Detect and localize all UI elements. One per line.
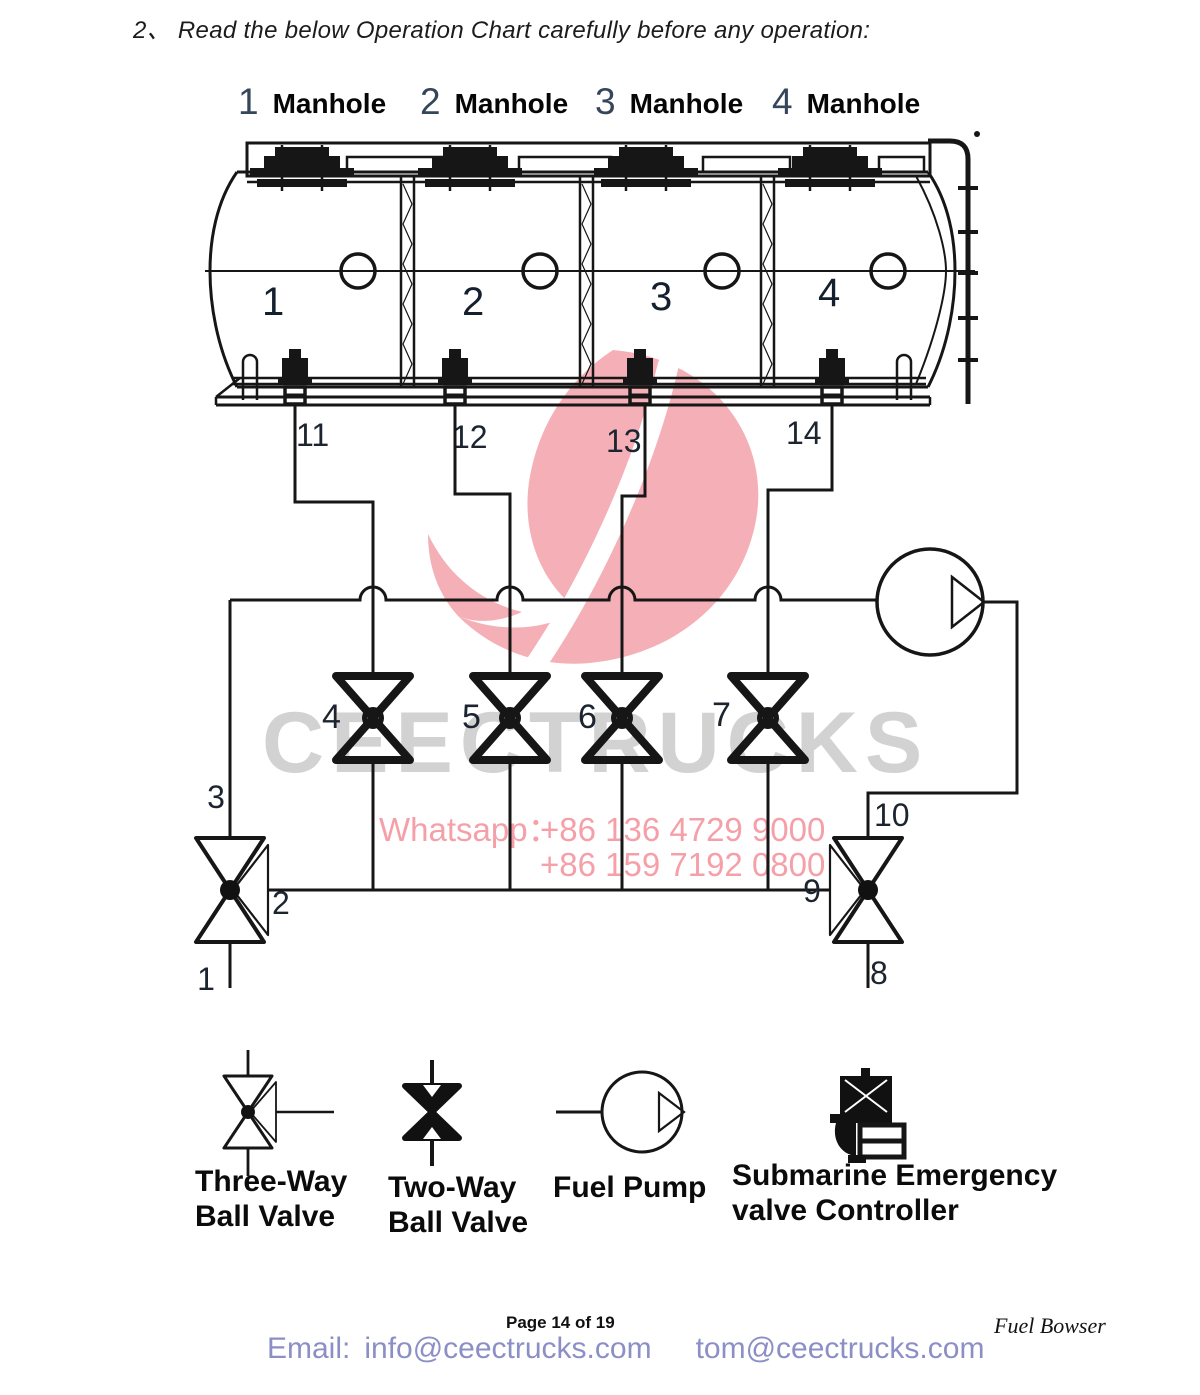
discharge-number: 12 bbox=[452, 419, 488, 455]
manhole-word: Manhole bbox=[455, 86, 569, 122]
email-address-1: info@ceectrucks.com bbox=[364, 1332, 651, 1366]
legend-line: Fuel Pump bbox=[553, 1170, 706, 1205]
valve-number: 6 bbox=[578, 698, 597, 736]
compartment-number: 3 bbox=[650, 275, 672, 319]
three-way-valve-left bbox=[196, 838, 268, 942]
legend-line: valve Controller bbox=[732, 1193, 1057, 1228]
port-number: 2 bbox=[272, 885, 290, 921]
compartment-number: 2 bbox=[462, 280, 484, 324]
manhole-word: Manhole bbox=[630, 86, 744, 122]
manhole-label-3: 3 Manhole bbox=[595, 84, 743, 122]
manhole-number: 1 bbox=[238, 84, 259, 120]
manhole-symbol-3 bbox=[594, 145, 698, 191]
port-number: 10 bbox=[874, 797, 910, 833]
legend-label-two-way: Two-Way Ball Valve bbox=[388, 1170, 528, 1240]
manhole-number: 2 bbox=[420, 84, 441, 120]
valve-number: 4 bbox=[322, 698, 341, 736]
legend-line: Ball Valve bbox=[388, 1205, 528, 1240]
legend-line: Three-Way bbox=[195, 1164, 347, 1199]
suction-manifold bbox=[230, 587, 878, 600]
page-instruction: 2、 Read the below Operation Chart carefu… bbox=[133, 10, 870, 45]
legend-label-fuel-pump: Fuel Pump bbox=[553, 1170, 706, 1205]
compartment-divider-2 bbox=[580, 176, 593, 387]
tank-left-head bbox=[210, 172, 237, 387]
discharge-number: 13 bbox=[606, 423, 642, 459]
manhole-number: 4 bbox=[772, 84, 793, 120]
whatsapp-phone-1: +86 136 4729 9000 bbox=[540, 811, 825, 848]
manhole-word: Manhole bbox=[807, 86, 921, 122]
email-address-2: tom@ceectrucks.com bbox=[696, 1332, 985, 1366]
manhole-label-1: 1 Manhole bbox=[238, 84, 386, 122]
email-label: Email: bbox=[267, 1332, 350, 1366]
manhole-label-4: 4 Manhole bbox=[772, 84, 920, 122]
three-way-valve-right bbox=[830, 838, 902, 942]
port-number: 3 bbox=[207, 779, 225, 815]
two-way-ball-valve-icon bbox=[405, 1060, 459, 1166]
compartment-number: 4 bbox=[818, 271, 840, 315]
top-plate bbox=[879, 157, 924, 172]
document-title: Fuel Bowser bbox=[994, 1313, 1106, 1339]
page-number: Page 14 of 19 bbox=[506, 1313, 615, 1333]
top-plate bbox=[703, 157, 790, 172]
manhole-symbol-2 bbox=[418, 145, 522, 191]
port-number: 8 bbox=[870, 955, 888, 991]
compartment-number: 1 bbox=[262, 280, 284, 324]
port-number: 9 bbox=[803, 873, 821, 909]
legend-label-controller: Submarine Emergency valve Controller bbox=[732, 1158, 1057, 1228]
manhole-number: 3 bbox=[595, 84, 616, 120]
fuel-pump-symbol bbox=[877, 549, 984, 655]
legend-line: Submarine Emergency bbox=[732, 1158, 1057, 1193]
footer-email-line: Email: info@ceectrucks.com tom@ceectruck… bbox=[267, 1332, 984, 1366]
compartment-divider-1 bbox=[401, 176, 414, 387]
tank-right-head bbox=[928, 172, 955, 387]
whatsapp-phone-2: +86 159 7192 0800 bbox=[540, 846, 825, 883]
document-page: 2、 Read the below Operation Chart carefu… bbox=[0, 0, 1200, 1395]
manhole-symbol-4 bbox=[778, 145, 882, 191]
legend-label-three-way: Three-Way Ball Valve bbox=[195, 1164, 347, 1234]
discharge-number: 11 bbox=[296, 417, 329, 453]
manhole-label-2: 2 Manhole bbox=[420, 84, 568, 122]
discharge-number: 14 bbox=[786, 415, 822, 451]
valve-number: 5 bbox=[462, 698, 481, 736]
manhole-word: Manhole bbox=[273, 86, 387, 122]
compartment-divider-3 bbox=[761, 176, 774, 387]
legend-line: Two-Way bbox=[388, 1170, 528, 1205]
legend-line: Ball Valve bbox=[195, 1199, 347, 1234]
valve-number: 7 bbox=[712, 696, 731, 734]
fuel-pump-icon bbox=[556, 1072, 684, 1152]
port-number: 1 bbox=[197, 961, 215, 997]
manhole-symbol-1 bbox=[250, 145, 354, 191]
whatsapp-watermark-label: Whatsapp： bbox=[379, 811, 561, 848]
submarine-emergency-valve-controller-icon bbox=[830, 1068, 904, 1163]
three-way-ball-valve-icon bbox=[224, 1050, 334, 1176]
